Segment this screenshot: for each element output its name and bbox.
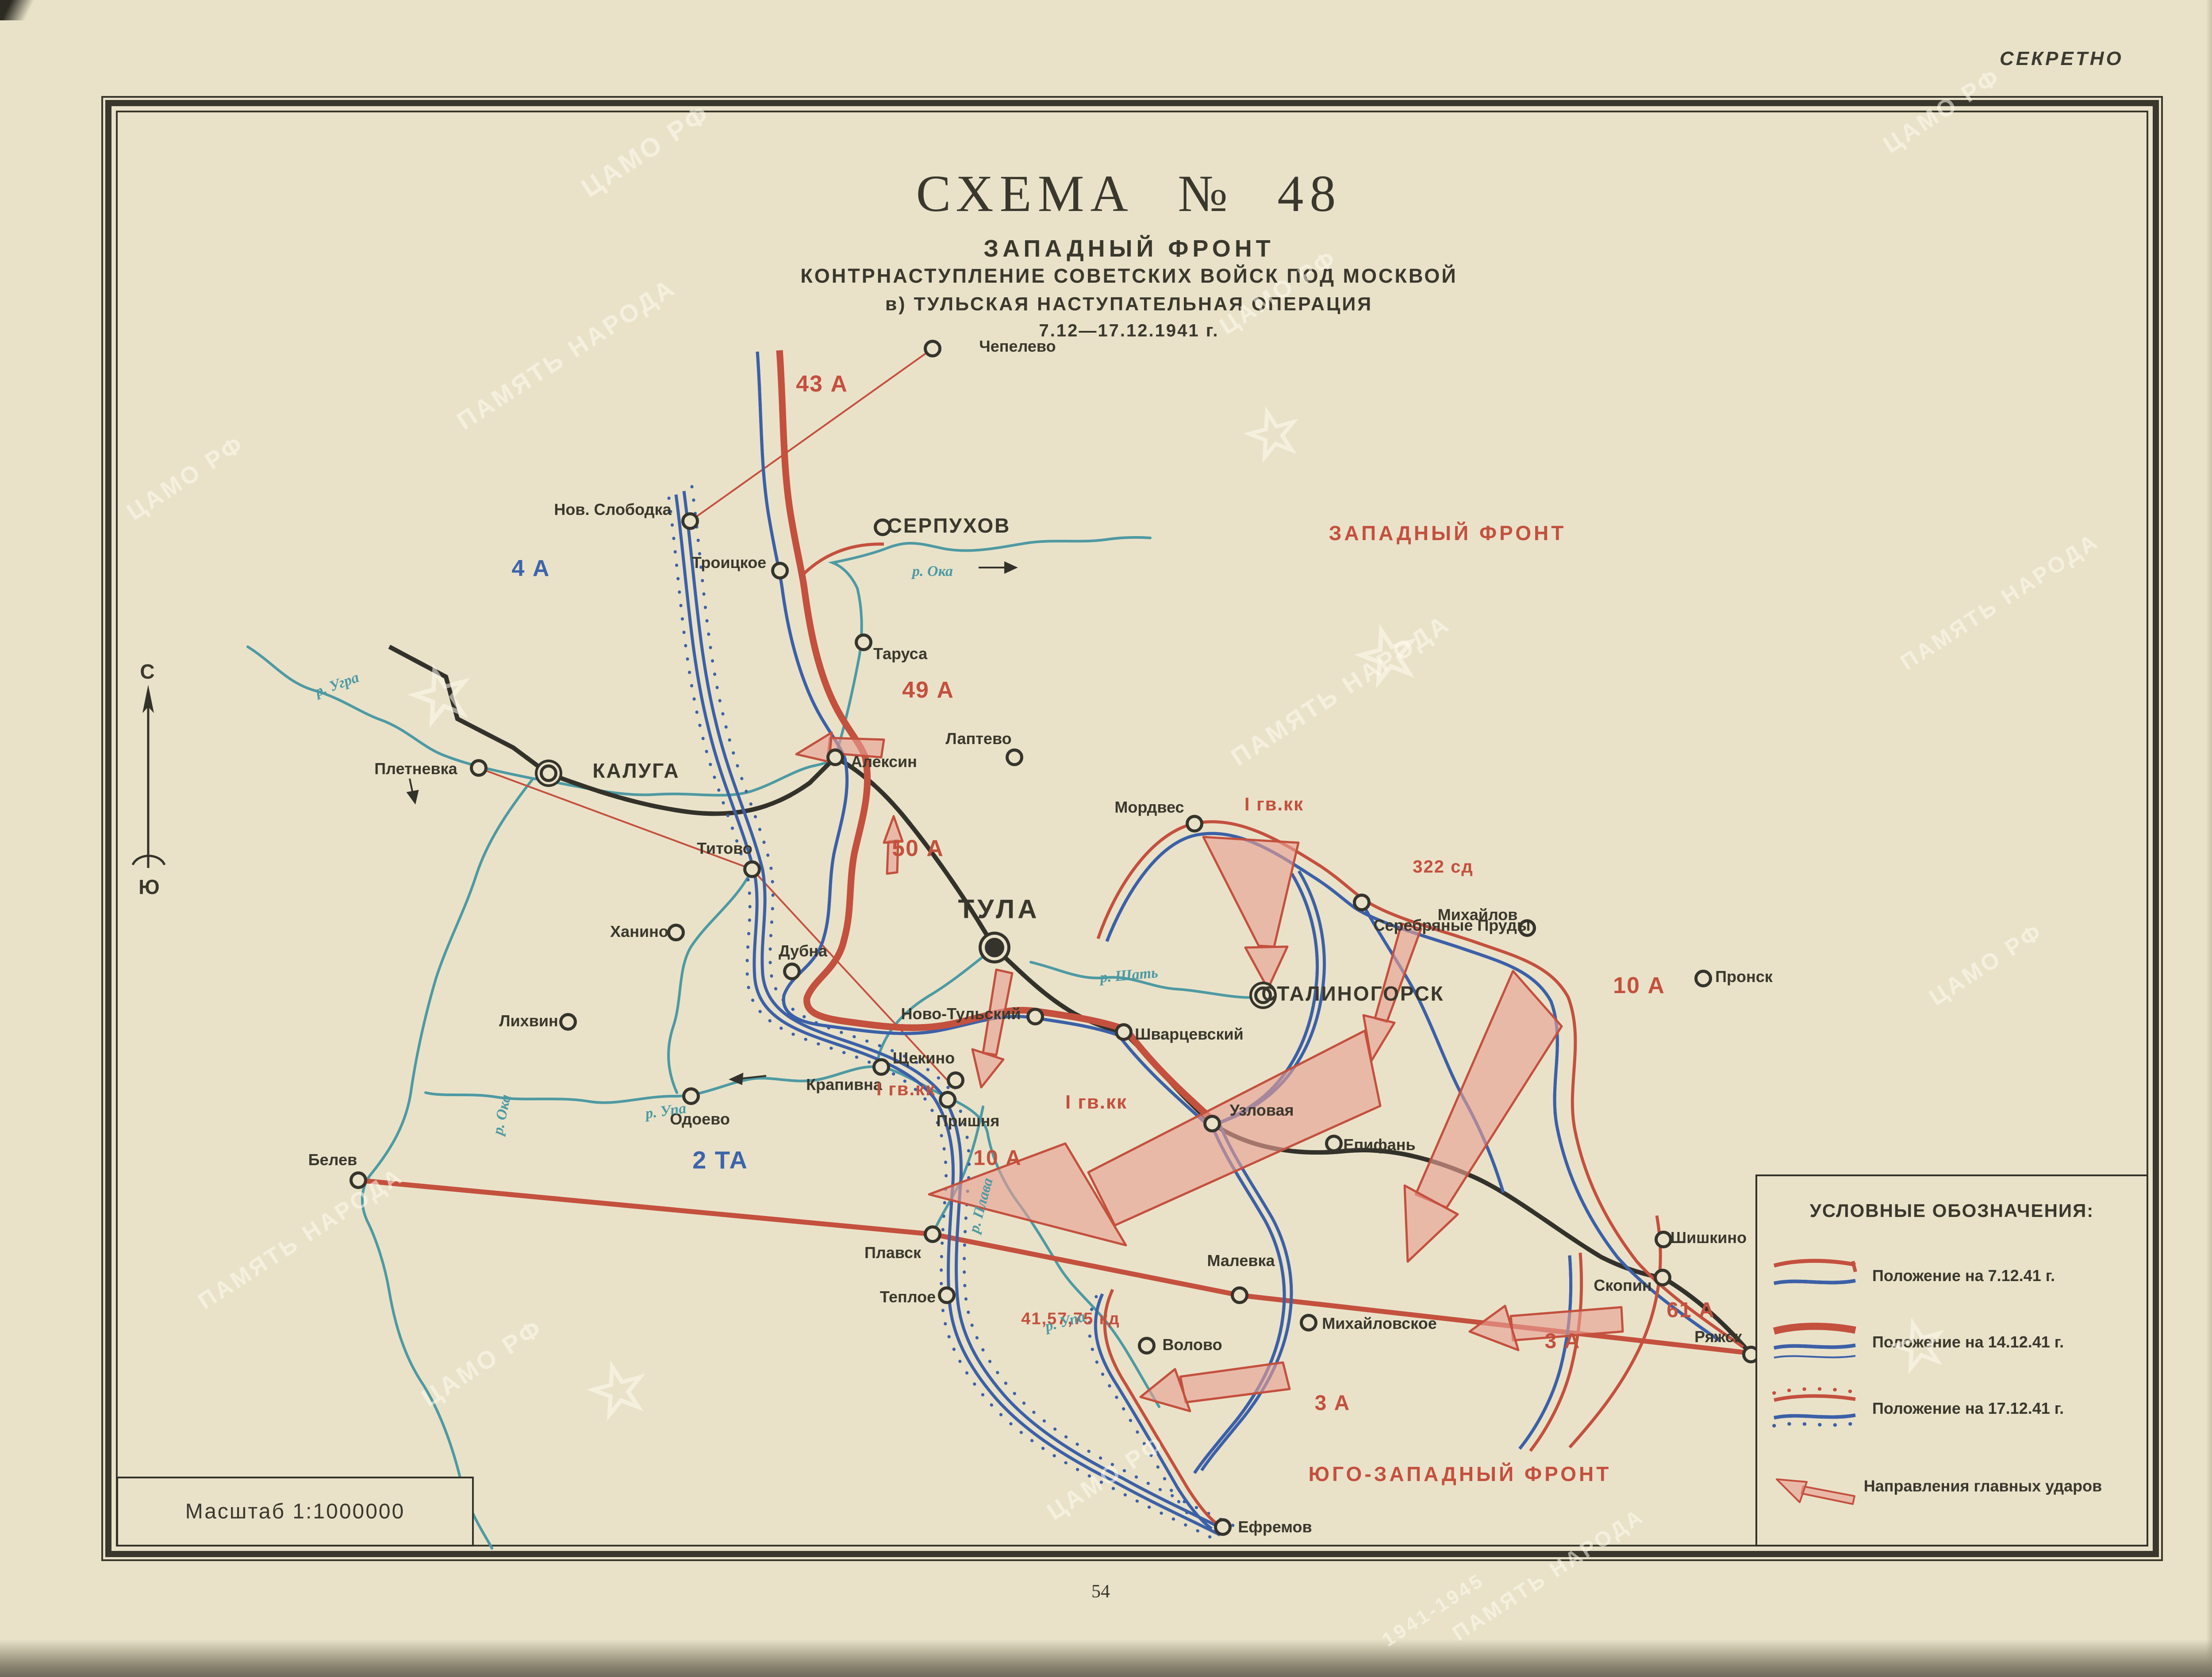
map-page: СЕКРЕТНО bbox=[0, 0, 2212, 1677]
legend-label: Направления главных ударов bbox=[1850, 1476, 2116, 1496]
city-label: Дубна bbox=[779, 942, 827, 960]
railways-layer bbox=[389, 647, 1751, 1355]
city-dot bbox=[540, 764, 557, 782]
city-label: Ханино bbox=[610, 922, 668, 941]
city-dot bbox=[667, 924, 685, 941]
city-dot bbox=[939, 1091, 956, 1109]
city-dot bbox=[1694, 970, 1712, 987]
city-dot bbox=[1231, 1286, 1248, 1304]
city-dot bbox=[771, 562, 789, 579]
city-label: Алексин bbox=[851, 752, 917, 771]
army-label: I гв.кк bbox=[1065, 1091, 1127, 1113]
city-label: СТАЛИНОГОРСК bbox=[1261, 982, 1444, 1005]
front-line-14-12-icon bbox=[1770, 1318, 1859, 1366]
compass-arrow bbox=[133, 685, 165, 868]
legend-label: Положение на 17.12.41 г. bbox=[1872, 1399, 2064, 1418]
city-dot bbox=[872, 1058, 890, 1076]
city-label: Щекино bbox=[893, 1049, 955, 1067]
city-label: Узловая bbox=[1229, 1101, 1294, 1120]
army-label: 50 А bbox=[892, 835, 944, 862]
city-label: Мордвес bbox=[1114, 798, 1184, 817]
front-line-17-12-icon bbox=[1770, 1384, 1859, 1433]
city-dot bbox=[855, 633, 872, 651]
front-title: ЮГО-ЗАПАДНЫЙ ФРОНТ bbox=[1309, 1462, 1612, 1486]
city-dot bbox=[924, 340, 941, 357]
rivers-layer bbox=[248, 537, 1253, 1548]
front-line-7-12-icon bbox=[1770, 1251, 1859, 1300]
city-dot bbox=[1115, 1023, 1133, 1041]
city-label: Шварцевский bbox=[1135, 1025, 1244, 1044]
city-label: Скопин bbox=[1594, 1276, 1651, 1295]
attack-direction-icon bbox=[1770, 1451, 1859, 1521]
compass-letter: Ю bbox=[138, 875, 159, 899]
scale-box: Масштаб 1:1000000 bbox=[116, 1477, 474, 1547]
city-label: Михайловское bbox=[1322, 1314, 1437, 1333]
army-label: I гв.кк bbox=[876, 1078, 936, 1100]
army-label: 3 А bbox=[1315, 1391, 1351, 1416]
army-label: 10 А bbox=[973, 1146, 1022, 1170]
city-dot bbox=[681, 512, 699, 530]
army-label: 4 А bbox=[512, 555, 550, 582]
legend-title: УСЛОВНЫЕ ОБОЗНАЧЕНИЯ: bbox=[1810, 1200, 2094, 1221]
army-label: 49 А bbox=[902, 677, 954, 703]
city-dot bbox=[1300, 1314, 1317, 1332]
city-label: СЕРПУХОВ bbox=[887, 514, 1011, 537]
city-label: Крапивна bbox=[806, 1075, 882, 1094]
city-dot bbox=[470, 759, 488, 777]
city-dot bbox=[947, 1071, 964, 1089]
city-dot bbox=[743, 860, 761, 878]
city-label: Белев bbox=[308, 1151, 357, 1169]
city-dot bbox=[1186, 815, 1203, 833]
city-dot bbox=[985, 938, 1004, 957]
city-label: Пришня bbox=[937, 1112, 1000, 1130]
city-label: Епифань bbox=[1343, 1136, 1415, 1154]
city-label: Михайлов bbox=[1438, 906, 1518, 924]
army-label: 10 А bbox=[1613, 972, 1665, 999]
legend-item: Направления главных ударов bbox=[1770, 1451, 2133, 1521]
city-dot bbox=[1655, 1231, 1672, 1248]
city-dot bbox=[783, 963, 801, 980]
city-label: Чепелево bbox=[979, 337, 1056, 356]
city-label: Ряжск bbox=[1694, 1328, 1742, 1346]
city-label: Троицкое bbox=[692, 553, 766, 572]
city-dot bbox=[1325, 1135, 1343, 1152]
legend-item: Положение на 7.12.41 г. bbox=[1770, 1251, 2133, 1300]
army-label: 2 ТА bbox=[692, 1146, 748, 1174]
city-dot bbox=[1214, 1518, 1232, 1536]
compass-letter: С bbox=[140, 660, 154, 683]
army-label: 43 А bbox=[796, 371, 848, 397]
city-label: КАЛУГА bbox=[592, 759, 680, 783]
city-dot bbox=[1203, 1115, 1221, 1132]
city-label: Плавск bbox=[864, 1243, 921, 1262]
city-dot bbox=[1138, 1337, 1156, 1355]
front-title: ЗАПАДНЫЙ ФРОНТ bbox=[1329, 521, 1567, 545]
army-label: 3 А bbox=[1545, 1329, 1581, 1354]
army-label: 322 сд bbox=[1413, 857, 1474, 877]
city-label: ТУЛА bbox=[958, 894, 1040, 925]
city-label: Титово bbox=[697, 839, 753, 858]
city-label: Теплое bbox=[880, 1288, 936, 1306]
city-dot bbox=[924, 1225, 941, 1243]
city-dot bbox=[1654, 1269, 1671, 1286]
legend-item: Положение на 17.12.41 г. bbox=[1770, 1384, 2133, 1433]
scale-label: Масштаб 1:1000000 bbox=[185, 1500, 405, 1524]
city-label: Ново-Тульский bbox=[901, 1005, 1021, 1023]
river-label: р. Ока bbox=[912, 563, 953, 580]
city-dot bbox=[1026, 1008, 1044, 1025]
city-label: Лаптево bbox=[945, 729, 1011, 748]
army-label: 61 А bbox=[1667, 1298, 1715, 1323]
city-label: Лихвин bbox=[499, 1012, 558, 1030]
city-dot bbox=[559, 1013, 577, 1031]
page-number: 54 bbox=[1091, 1581, 1110, 1602]
city-dot bbox=[938, 1286, 956, 1304]
city-dot bbox=[1353, 894, 1371, 911]
city-label: Плетневка bbox=[374, 760, 457, 778]
city-dot bbox=[1006, 748, 1023, 766]
city-label: Ефремов bbox=[1238, 1518, 1312, 1536]
army-label: I гв.кк bbox=[1244, 794, 1304, 815]
city-label: Пронск bbox=[1715, 967, 1773, 986]
city-label: Волово bbox=[1162, 1335, 1222, 1354]
city-label: Нов. Слободка bbox=[554, 500, 671, 519]
city-dot bbox=[826, 748, 844, 766]
legend-label: Положение на 7.12.41 г. bbox=[1872, 1266, 2055, 1285]
city-label: Таруса bbox=[873, 645, 927, 663]
city-label: Шишкино bbox=[1671, 1228, 1747, 1247]
front-lines-layer bbox=[669, 350, 1743, 1539]
city-label: Малевка bbox=[1207, 1251, 1275, 1270]
